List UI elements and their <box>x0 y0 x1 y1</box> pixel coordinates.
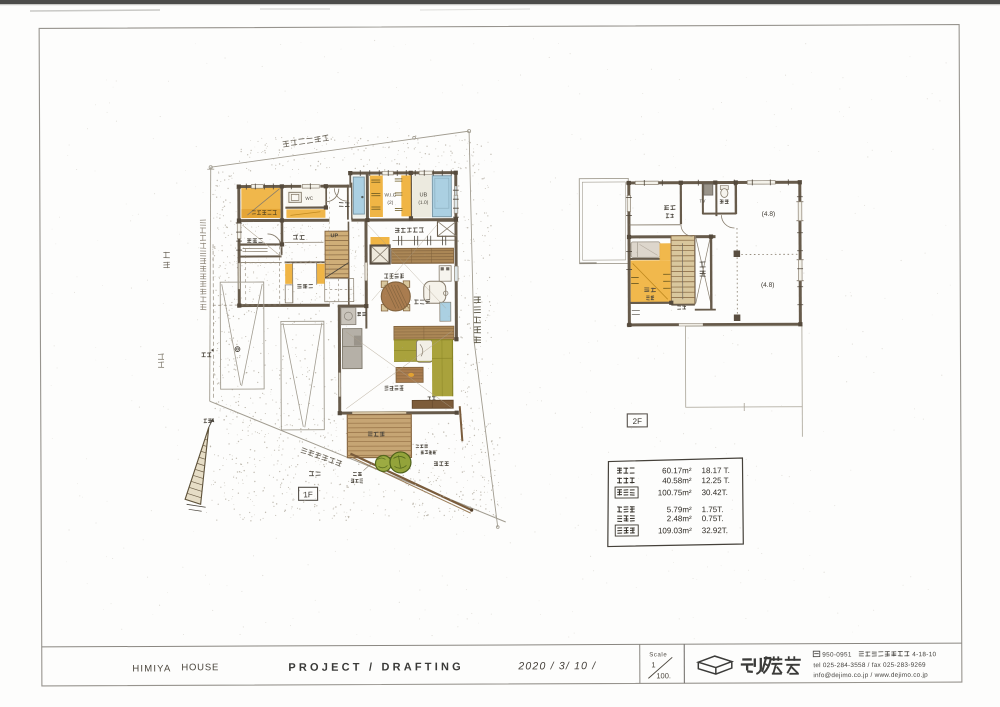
svg-text:950-0951: 950-0951 <box>822 652 852 659</box>
svg-text:2F: 2F <box>633 417 642 426</box>
svg-text:1.75T.: 1.75T. <box>702 505 724 514</box>
svg-text:TV: TV <box>699 199 706 205</box>
svg-text:info@dejimo.co.jp / www.dejimo: info@dejimo.co.jp / www.dejimo.co.jp <box>813 672 928 679</box>
svg-text:(4.8): (4.8) <box>761 282 775 289</box>
svg-text:18.17 T.: 18.17 T. <box>701 466 729 475</box>
svg-text:100.75m²: 100.75m² <box>658 488 692 497</box>
svg-text:(1.0): (1.0) <box>418 200 428 206</box>
svg-text:UB: UB <box>419 192 427 198</box>
svg-text:(2): (2) <box>387 200 393 206</box>
svg-text:109.03m²: 109.03m² <box>658 526 692 535</box>
svg-text:UP: UP <box>330 233 338 239</box>
svg-text:1F: 1F <box>303 490 312 499</box>
svg-text:60.17m²: 60.17m² <box>662 466 692 475</box>
svg-text:Scale: Scale <box>649 652 667 658</box>
svg-text:12.25 T.: 12.25 T. <box>702 476 730 485</box>
svg-text:tel 025-284-3558 / fax 025-283: tel 025-284-3558 / fax 025-283-9269 <box>813 662 926 669</box>
svg-text:WC: WC <box>305 196 313 201</box>
svg-text:0.75T.: 0.75T. <box>702 514 724 523</box>
svg-text:HIMIYA: HIMIYA <box>132 663 171 674</box>
svg-text:PROJECT / DRAFTING: PROJECT / DRAFTING <box>288 661 464 674</box>
svg-text:100.: 100. <box>656 671 671 680</box>
svg-text:HOUSE: HOUSE <box>181 662 219 673</box>
svg-text:2.48m²: 2.48m² <box>667 514 692 523</box>
svg-text:4-18-10: 4-18-10 <box>912 651 936 658</box>
svg-text:1: 1 <box>651 660 655 669</box>
svg-text:W.I.C: W.I.C <box>384 192 396 198</box>
svg-text:32.92T.: 32.92T. <box>702 526 728 535</box>
svg-text:40.58m²: 40.58m² <box>662 476 692 485</box>
svg-text:30.42T.: 30.42T. <box>702 488 728 497</box>
svg-text:5.79m²: 5.79m² <box>667 505 692 514</box>
svg-text:(4.8): (4.8) <box>762 211 776 218</box>
svg-text:2020 / 3/ 10 /: 2020 / 3/ 10 / <box>517 660 596 672</box>
